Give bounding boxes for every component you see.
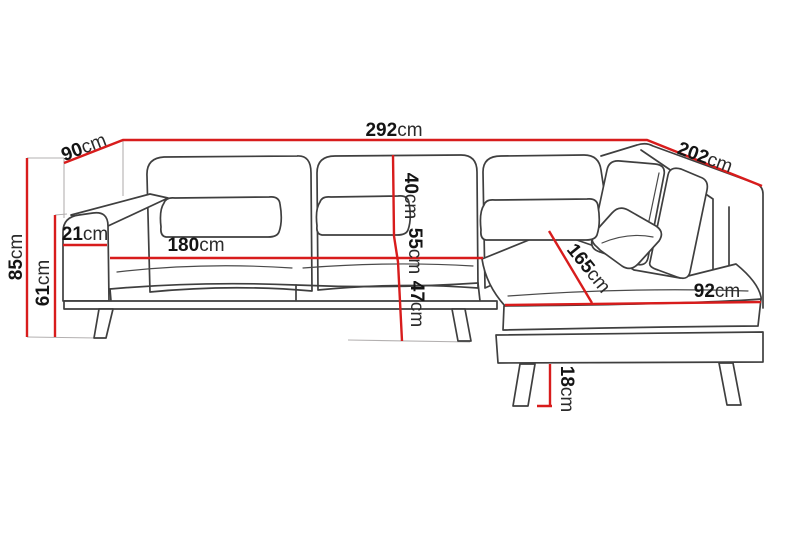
- label-armrest-height: 61cm: [33, 260, 54, 306]
- label-armrest-width: 21cm: [62, 224, 108, 245]
- base-rail: [64, 301, 497, 309]
- front-left-leg: [94, 309, 113, 338]
- label-left-depth: 90cm: [59, 130, 110, 166]
- label-total-height: 85cm: [6, 234, 27, 280]
- dimension-line-leg-height: [537, 364, 552, 406]
- label-seat-depth: 55cm: [404, 228, 425, 274]
- label-chaise-width: 92cm: [694, 281, 740, 302]
- label-backrest-height: 40cm: [400, 173, 421, 219]
- lumbar-pillow-3: [480, 199, 599, 240]
- projection-armrest-top: [55, 214, 67, 215]
- diagram-canvas: 292cm 90cm 202cm 85cm 61cm 21cm 180cm 40…: [0, 0, 800, 533]
- label-total-width: 292cm: [365, 120, 422, 141]
- projection-floor-left: [27, 337, 97, 338]
- chaise-plinth: [496, 332, 763, 363]
- projection-floor-center: [348, 340, 470, 342]
- lumbar-pillow-2: [316, 196, 410, 235]
- sofa-dimension-diagram: 292cm 90cm 202cm 85cm 61cm 21cm 180cm 40…: [0, 0, 800, 533]
- label-seat-width: 180cm: [167, 235, 224, 256]
- chaise-right-leg: [719, 363, 741, 405]
- label-leg-height: 18cm: [556, 366, 577, 412]
- lumbar-pillow-1: [160, 197, 281, 237]
- chaise-left-leg: [513, 364, 535, 406]
- label-seat-height: 47cm: [406, 281, 427, 327]
- front-center-leg: [452, 309, 471, 341]
- lumbar-pillows: [160, 196, 599, 240]
